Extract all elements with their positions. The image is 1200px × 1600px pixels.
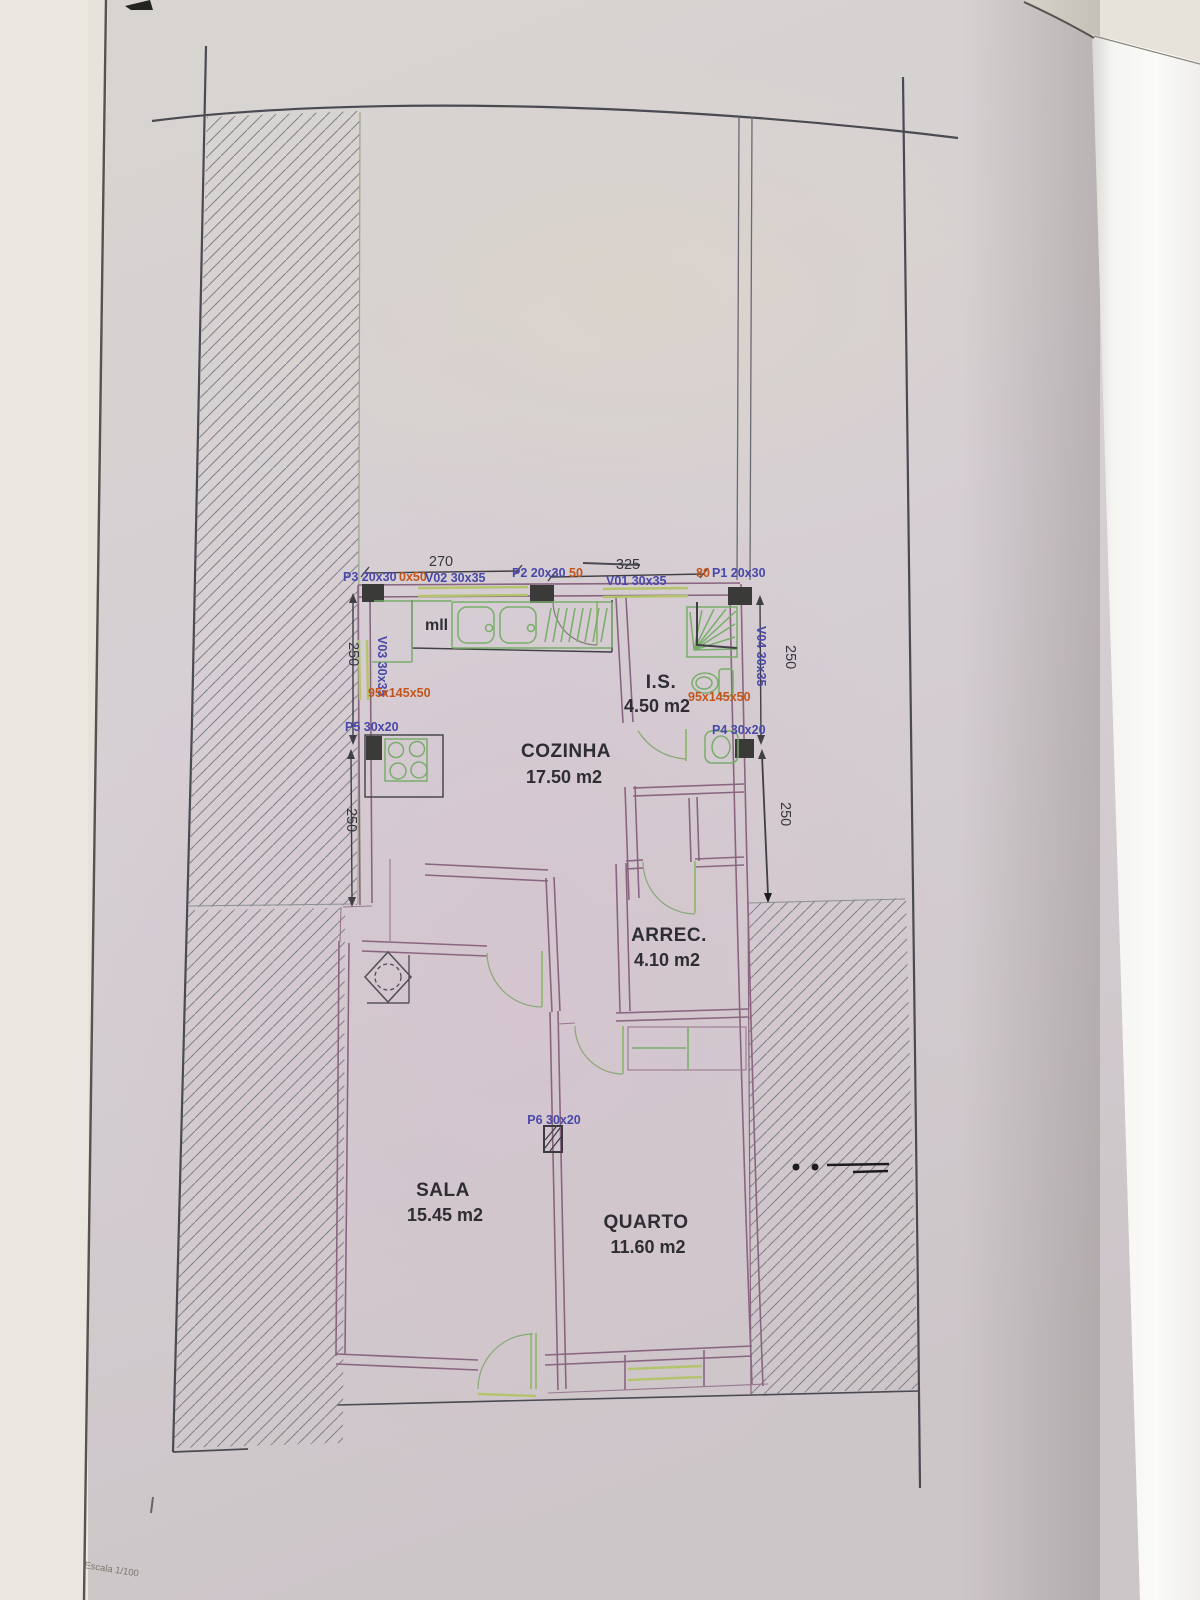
door-label-p2: P2 20x30	[512, 566, 566, 580]
door-label-p1: P1 20x30	[712, 566, 766, 580]
door-label-p5: P5 30x20	[345, 720, 399, 734]
room-label-cozinha: COZINHA	[521, 741, 611, 762]
mark-dot-1	[793, 1164, 800, 1171]
floor-plan-svg: 270 325 250 250 250 250 P3 20x30 0x50 P2…	[0, 0, 1200, 1600]
dim-250-left-lower: 250	[343, 808, 359, 832]
door-label-p4: P4 30x20	[712, 723, 766, 737]
window-label-v04: V04 30x35	[754, 626, 768, 687]
hatch-left-upper	[188, 111, 360, 907]
dim-250-right-upper: 250	[782, 645, 798, 669]
door-label-p3: P3 20x30	[343, 570, 397, 584]
room-area-arrec: 4.10 m2	[634, 950, 700, 970]
door-label-p3-extra: 0x50	[399, 570, 427, 584]
column-p1	[728, 587, 752, 605]
dim-250-left-upper: 250	[345, 642, 361, 666]
column-p5	[366, 736, 382, 760]
sill-label-right: 95x145x50	[688, 690, 751, 704]
window-label-v02: V02 30x35	[425, 571, 486, 585]
dim-250-right-lower: 250	[777, 802, 793, 826]
photographed-floor-plan: 270 325 250 250 250 250 P3 20x30 0x50 P2…	[0, 0, 1200, 1600]
room-area-is: 4.50 m2	[624, 696, 690, 716]
sill-label-left: 95x145x50	[368, 686, 431, 700]
column-p3	[362, 584, 384, 602]
door-label-p2-extra: 50	[569, 566, 583, 580]
column-p2	[530, 585, 554, 603]
door-label-p1-extra: 80	[696, 566, 710, 580]
left-wall	[0, 0, 88, 1600]
window-label-v01: V01 30x35	[606, 574, 667, 588]
room-label-sala: SALA	[416, 1180, 470, 1201]
mark-dot-2	[812, 1164, 819, 1171]
room-label-arrec: ARREC.	[631, 925, 707, 946]
hatch-left-lower	[174, 908, 345, 1448]
hatch-right	[748, 898, 918, 1394]
appliance-label-mll: mll	[425, 617, 448, 634]
mark-line-2	[853, 1171, 888, 1172]
dim-325: 325	[616, 557, 640, 573]
door-label-p6: P6 30x20	[527, 1113, 581, 1127]
room-label-is: I.S.	[646, 672, 677, 693]
room-area-sala: 15.45 m2	[407, 1205, 483, 1225]
room-label-quarto: QUARTO	[604, 1212, 689, 1233]
mark-line-1	[827, 1164, 889, 1165]
dim-270: 270	[429, 554, 453, 570]
room-area-quarto: 11.60 m2	[610, 1237, 685, 1257]
page-fold-shadow	[960, 0, 1100, 1600]
room-area-cozinha: 17.50 m2	[526, 767, 602, 787]
